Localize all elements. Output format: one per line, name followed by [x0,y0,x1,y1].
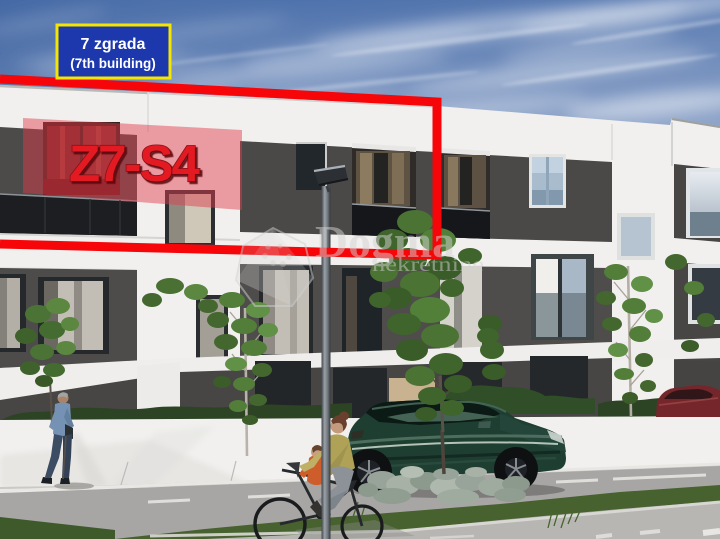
svg-text:nekretnine: nekretnine [372,254,484,276]
svg-text:7 zgrada: 7 zgrada [81,36,146,53]
svg-text:Z7-S4: Z7-S4 [69,135,201,192]
svg-text:(7th building): (7th building) [70,56,155,71]
